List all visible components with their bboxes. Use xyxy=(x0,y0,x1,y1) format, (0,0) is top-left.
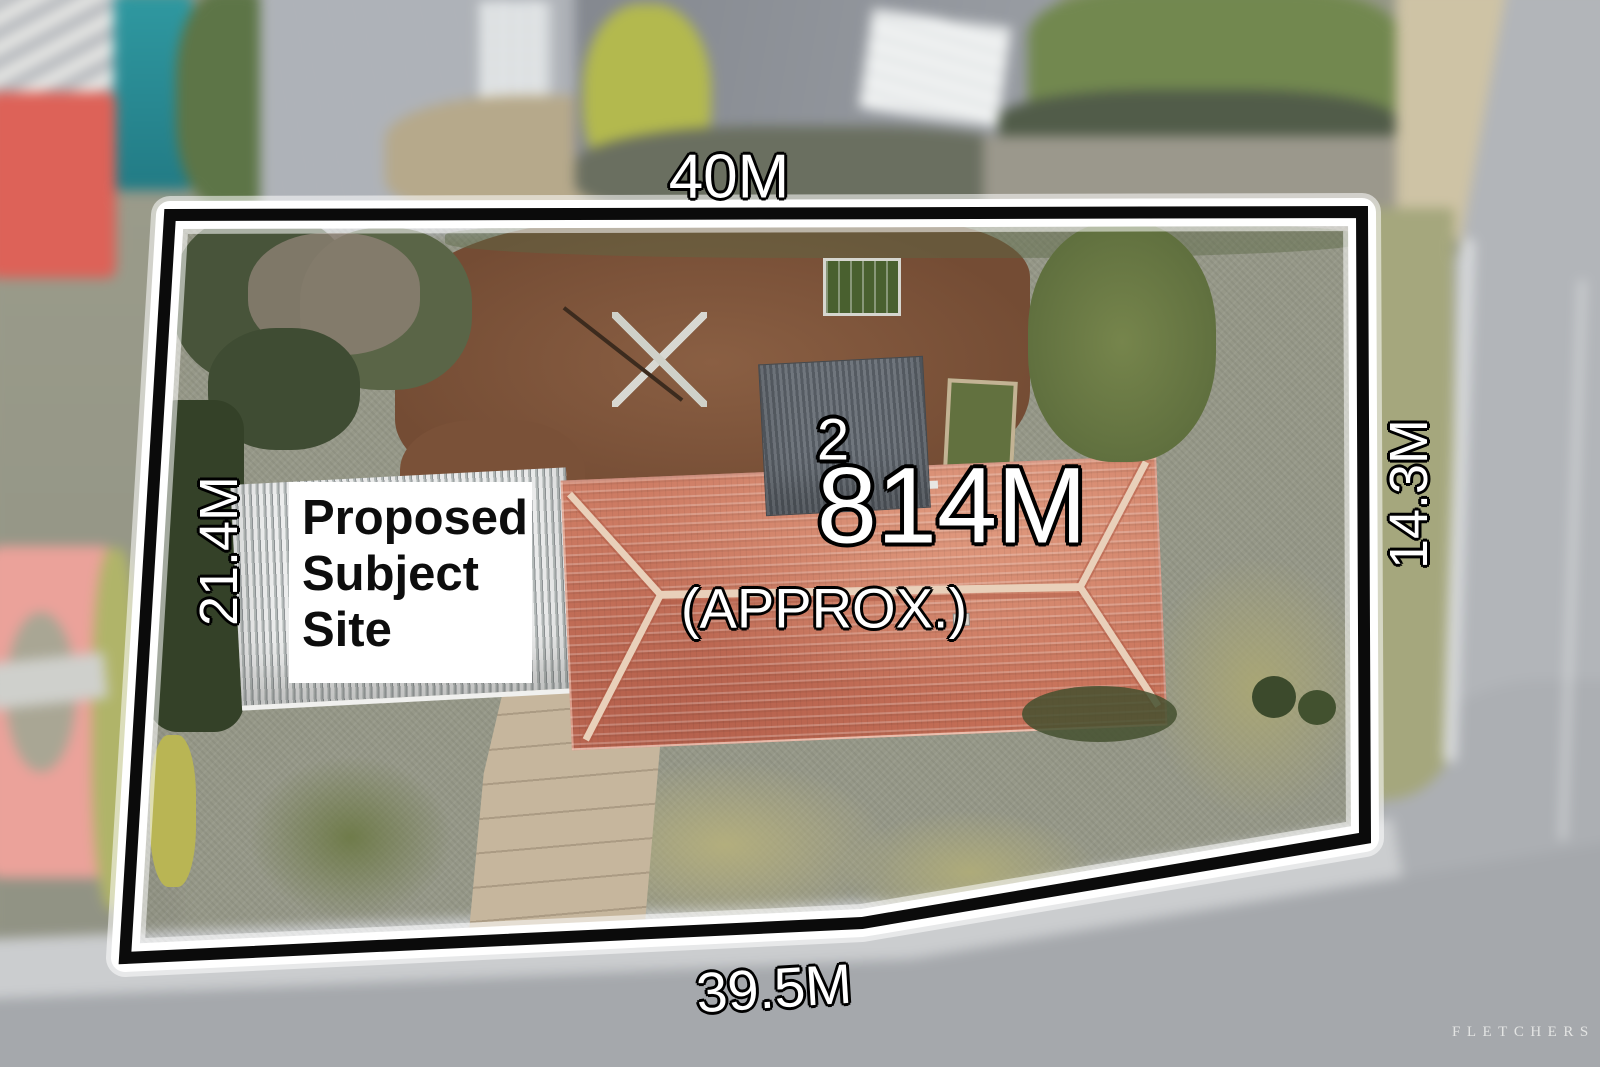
aerial-photo: 40M 21.4M 14.3M 39.5M 814M2 (APPROX.) Pr… xyxy=(0,0,1600,1067)
site-label-line: Subject xyxy=(289,546,532,602)
area-exponent: 2 xyxy=(817,408,849,473)
agency-watermark: FLETCHERS xyxy=(1452,1024,1595,1041)
proposed-subject-site-box: Proposed Subject Site xyxy=(289,482,532,683)
dimension-label-left: 21.4M xyxy=(188,476,250,626)
area-qualifier-label: (APPROX.) xyxy=(681,576,967,641)
area-label: 814M2 xyxy=(817,443,849,568)
site-label-line: Site xyxy=(289,602,532,658)
dimension-label-top: 40M xyxy=(669,142,790,213)
annotations: 40M 21.4M 14.3M 39.5M 814M2 (APPROX.) Pr… xyxy=(0,0,1600,1067)
site-label-line: Proposed xyxy=(289,482,532,546)
dimension-label-bottom: 39.5M xyxy=(694,951,853,1025)
dimension-label-right: 14.3M xyxy=(1378,419,1440,569)
